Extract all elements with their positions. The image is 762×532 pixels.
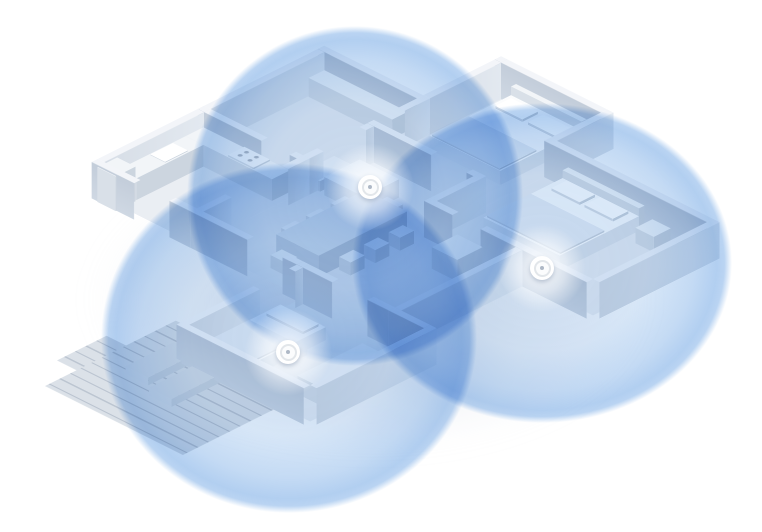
router-dot [540,266,544,270]
router-device [530,256,554,280]
router-dot [368,185,372,189]
router-device [358,175,382,199]
wifi-coverage-illustration [0,0,762,532]
router-ring [280,344,297,361]
router-device [276,340,300,364]
router-dot [286,350,290,354]
router-ring [362,179,379,196]
router-ring [534,260,551,277]
